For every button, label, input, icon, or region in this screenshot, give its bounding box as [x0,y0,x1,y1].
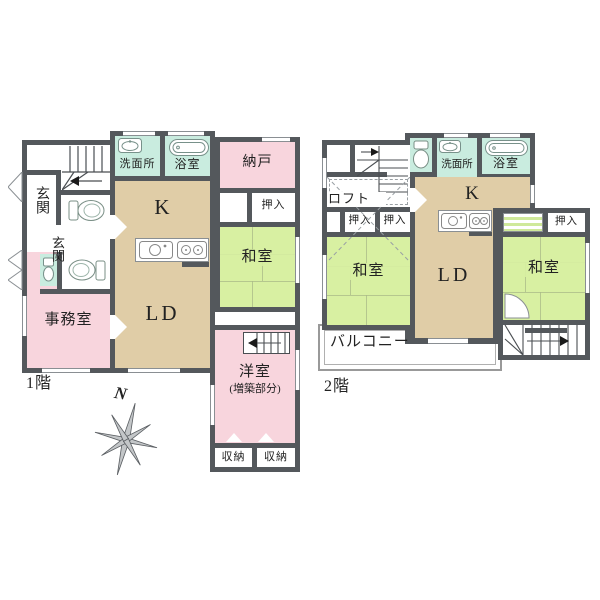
f2-floor-label: 2階 [324,378,384,396]
f2-tatami-line [366,295,367,325]
f1-hall-wallseg-2 [56,170,61,225]
f2-kitchen-label: K [415,184,530,205]
door-swing-icon [258,433,274,442]
door-swing-icon [226,433,242,442]
f2-vanity-sink-icon [439,140,461,153]
f2-counter-base [469,232,492,236]
f1-tatami-line [252,281,253,307]
f2-tatami-line [327,295,410,296]
f1-floor-label: 1階 [26,375,86,393]
window [490,133,520,138]
window [210,385,215,425]
f1-toilet2-bottom-wall [40,289,110,294]
f1-nando-label: 納戸 [220,155,295,170]
window [262,137,290,142]
floorplan-canvas: 玄関 洗面所 浴室 納戸 K [0,0,600,600]
f2-hall-wallseg-1 [350,145,355,172]
f1-toilet2-icon [66,257,106,283]
door-arc-icon [503,292,531,320]
f2-washitsu-left-label: 和室 [327,263,410,280]
f2-tatami-line [540,292,541,320]
window [168,131,204,136]
f1-yokushitsu-label: 浴室 [165,158,210,171]
f1-genkan-upper-label: 玄関 [33,177,49,223]
entrance-door-icon [8,250,23,290]
f2-shelf [503,213,543,232]
f2-tatami-line [540,237,541,262]
f1-shuno-left-label: 収納 [215,451,252,463]
f2-bathtub-icon [485,140,528,156]
f1-staircase-icon [62,146,110,190]
door-swing-icon [115,215,127,239]
window [322,158,327,188]
f2-oshiire-right-label: 押入 [548,216,585,228]
f2-loft-label: ロフト [328,192,386,206]
f1-senmenjo-label: 洗面所 [115,158,160,170]
f2-balcony-label: バルコニー [330,334,450,351]
entrance-door-icon [8,172,23,202]
compass-icon [88,400,164,478]
f2-ld-label: LD [415,264,493,286]
f2-toilet-icon [412,140,430,170]
f1-corridor-2 [215,312,295,325]
f1-counter-sink-icon [139,241,173,259]
window [444,133,468,138]
f2-yokushitsu-label: 浴室 [482,157,530,170]
door-swing-icon [415,188,427,212]
f1-ext-staircase-icon [243,332,290,354]
f2-stove-icon [469,213,490,229]
f1-tatami-line [220,281,295,282]
window [22,296,27,336]
loft-projection-lines [327,177,410,262]
f1-oshiire-label: 押入 [252,199,295,211]
f1-genkan-lower [27,225,110,252]
window [42,368,90,373]
window [585,243,590,293]
f1-stove-icon [177,241,207,259]
f1-jimushitsu-label: 事務室 [27,312,110,329]
f1-vanity-sink-icon [118,138,142,153]
window [123,131,155,136]
window [530,185,535,203]
f1-genkan-lower-label: 玄関 [49,224,64,274]
f2-senmenjo-label: 洗面所 [437,159,477,171]
f1-washitsu-room [220,227,295,307]
f1-toilet-icon [68,198,106,223]
window [295,350,300,390]
f1-counter-base [182,262,209,267]
f1-bathtub-icon [169,139,209,156]
f1-kitchen-label: K [115,196,210,219]
f1-shuno-right-label: 収納 [257,451,295,463]
door-swing-icon [115,315,127,339]
window [295,237,300,283]
f1-washitsu-label: 和室 [220,249,295,266]
f1-ld-label: LD [115,302,210,325]
window [128,368,180,373]
f2-washitsu-right-label: 和室 [503,260,585,277]
f1-youshitsu-note: (増築部分) [215,383,295,395]
f2-counter-sink-icon [441,213,467,229]
f2-stair-rail-wall [525,328,567,333]
f1-youshitsu-label: 洋室 [215,364,295,381]
f1-hall-wallseg-3 [61,190,110,195]
